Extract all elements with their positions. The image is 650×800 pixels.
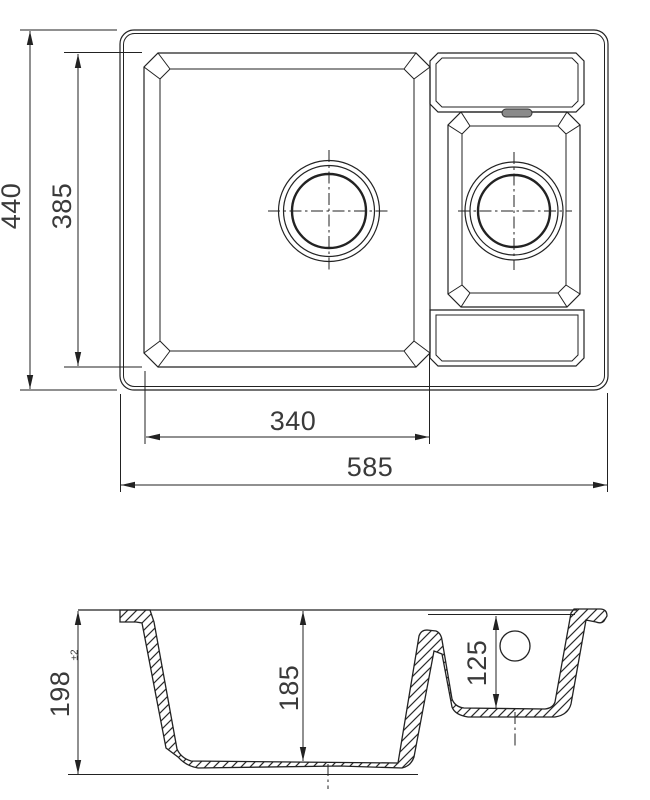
main-bowl-rim-inner	[160, 69, 414, 351]
top-view	[120, 30, 608, 390]
main-drain-centerlines	[268, 150, 390, 272]
small-drain-centerlines	[458, 152, 572, 270]
overflow-slot	[502, 109, 532, 117]
main-bowl-corner-bevels	[144, 53, 430, 367]
dim-main-bowl-depth-label: 185	[274, 665, 304, 712]
main-bowl-rim-outer	[144, 53, 430, 367]
section-view	[78, 609, 607, 789]
dim-overall-depth-label: 440	[0, 183, 26, 230]
dim-overall-height-tolerance-label: ±2	[70, 649, 81, 660]
compartment-top-ledge-inner	[436, 58, 578, 107]
section-material	[120, 609, 607, 768]
compartment-bottom-ledge-outer	[430, 310, 584, 366]
dim-inner-depth-label: 385	[47, 183, 77, 230]
sink-outer-edge	[120, 30, 608, 390]
compartment-top-ledge-outer	[430, 53, 584, 112]
small-bowl-rim-outer	[448, 112, 580, 307]
dim-overall-height-label: 198	[45, 671, 75, 718]
sink-outer-edge-inner-line	[124, 34, 605, 387]
section-centerlines	[328, 712, 515, 789]
section-small-drain-circle	[500, 631, 530, 661]
sink-technical-drawing: 440 385 340 585 198 ±2 185 125	[0, 0, 650, 800]
dim-bowl-width-label: 340	[270, 406, 317, 436]
dim-small-bowl-depth-label: 125	[462, 640, 492, 687]
dim-overall-width-label: 585	[347, 452, 394, 482]
small-bowl-corner-bevels	[448, 112, 580, 307]
drawing-svg: 440 385 340 585 198 ±2 185 125	[0, 0, 650, 800]
compartment-bottom-ledge-inner	[436, 315, 578, 361]
